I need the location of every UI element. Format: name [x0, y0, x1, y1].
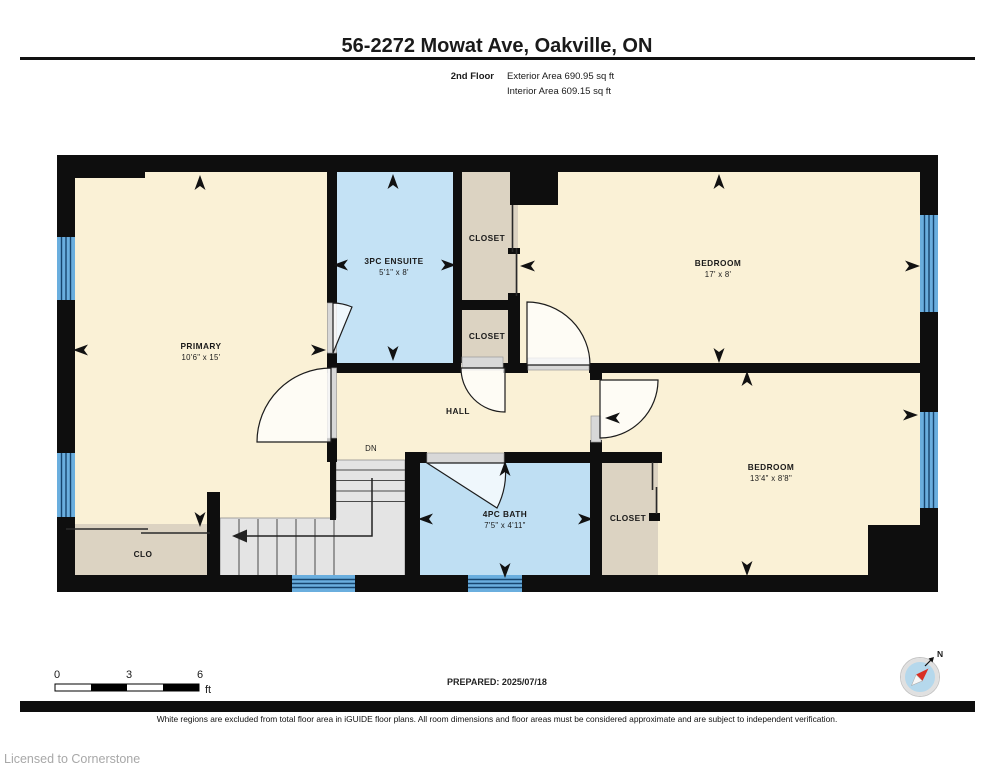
clo-label: CLO — [134, 549, 153, 559]
compass-icon: N — [901, 649, 944, 697]
scale-bar-seg2 — [163, 684, 199, 691]
hall-label: HALL — [446, 406, 470, 416]
window-left-lower — [57, 453, 75, 517]
floor-label: 2nd Floor — [451, 71, 495, 82]
bedroom2-label: BEDROOM — [748, 462, 794, 472]
footer-bar — [20, 701, 975, 712]
closet-mid-label: CLOSET — [469, 331, 505, 341]
bath-door-opening — [427, 453, 504, 463]
window-bottom-stairs — [292, 575, 355, 592]
bedroom1-dims: 17' x 8' — [705, 270, 732, 279]
prepared-date-label: PREPARED: 2025/07/18 — [447, 677, 547, 687]
scale-tick-6: 6 — [197, 669, 203, 681]
header-divider — [20, 57, 975, 60]
stairs-dn-label: DN — [365, 444, 377, 453]
primary-label: PRIMARY — [180, 341, 221, 351]
page-title: 56-2272 Mowat Ave, Oakville, ON — [342, 35, 653, 57]
license-text: Licensed to Cornerstone — [4, 752, 140, 766]
closet-right-label: CLOSET — [610, 513, 646, 523]
primary-dims: 10'6" x 15' — [182, 353, 221, 362]
ensuite-label: 3PC ENSUITE — [364, 256, 423, 266]
scale-tick-0: 0 — [54, 669, 60, 681]
floorplan-canvas: 56-2272 Mowat Ave, Oakville, ON 2nd Floo… — [0, 0, 995, 768]
footer: White regions are excluded from total fl… — [4, 701, 975, 766]
floorplan-page: 56-2272 Mowat Ave, Oakville, ON 2nd Floo… — [0, 0, 995, 768]
disclaimer-text: White regions are excluded from total fl… — [157, 714, 838, 724]
bedroom2-dims: 13'4" x 8'8" — [750, 474, 792, 483]
scale-unit-label: ft — [205, 684, 211, 696]
window-left-upper — [57, 237, 75, 300]
scale-bar: 0 3 6 ft — [54, 669, 211, 696]
ensuite-dims: 5'1" x 8' — [379, 268, 409, 277]
bath-dims: 7'5" x 4'11" — [484, 521, 525, 530]
window-right-upper — [920, 215, 938, 312]
interior-area-label: Interior Area 609.15 sq ft — [507, 86, 611, 97]
closet-top-label: CLOSET — [469, 233, 505, 243]
north-label: N — [937, 649, 943, 659]
bedroom1-label: BEDROOM — [695, 258, 741, 268]
header: 56-2272 Mowat Ave, Oakville, ON 2nd Floo… — [20, 35, 975, 97]
bath-label: 4PC BATH — [483, 509, 527, 519]
scale-bar-seg1 — [91, 684, 127, 691]
window-bottom-bath — [468, 575, 522, 592]
exterior-area-label: Exterior Area 690.95 sq ft — [507, 71, 615, 82]
window-right-lower — [920, 412, 938, 508]
scale-tick-3: 3 — [126, 669, 132, 681]
